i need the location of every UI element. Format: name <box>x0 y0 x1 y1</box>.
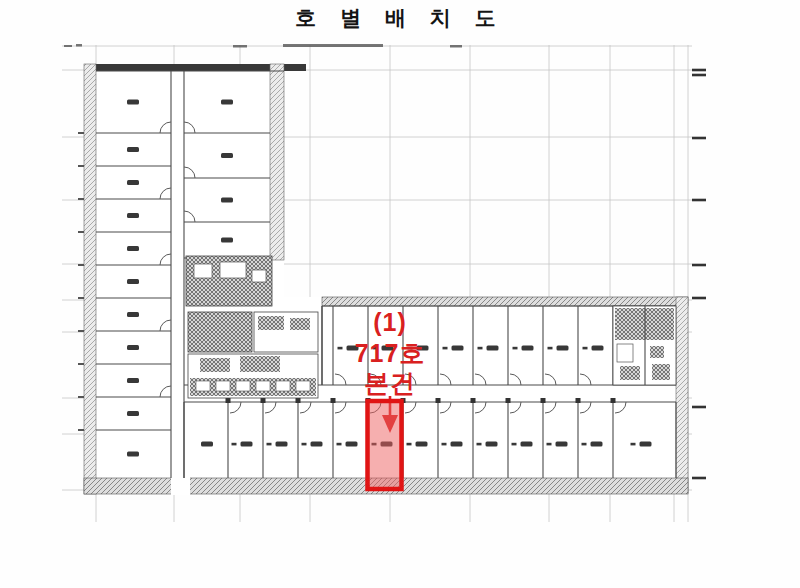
room-number-blob <box>232 443 237 446</box>
dimension-tick <box>692 477 706 480</box>
core-cell <box>290 318 310 330</box>
column-nub <box>541 398 546 403</box>
dimension-tick <box>692 137 706 140</box>
room-number-blob <box>127 213 139 218</box>
room-number-blob <box>513 347 518 350</box>
room-number-blob <box>201 442 213 447</box>
room-number-blob <box>452 346 464 351</box>
room-number-blob <box>583 347 588 350</box>
room-number-blob <box>631 443 636 446</box>
highlighted-unit-717 <box>368 401 402 489</box>
service-core-center <box>186 256 318 398</box>
right-wall <box>676 297 688 493</box>
fixture <box>617 344 633 362</box>
room-number-blob <box>241 442 253 447</box>
room-number-blob <box>221 100 233 105</box>
left-wall <box>84 64 96 494</box>
room-number-blob <box>302 443 307 446</box>
column-nub <box>471 398 476 403</box>
elevator-core <box>188 312 252 352</box>
annotation-unit-number: 717호 <box>355 339 426 367</box>
room-number-blob <box>522 346 534 351</box>
scan-artifact <box>64 45 72 47</box>
room-number-blob <box>221 238 233 243</box>
room-number-blob <box>451 442 463 447</box>
room-number-blob <box>276 442 288 447</box>
core-cell <box>200 358 230 372</box>
entrance-gap <box>171 477 190 495</box>
room-number-blob <box>486 442 498 447</box>
room-number-blob <box>521 442 533 447</box>
room-number-blob <box>267 443 272 446</box>
dimension-tick <box>692 406 706 409</box>
service-core-right <box>613 306 676 385</box>
core-cell <box>194 264 212 278</box>
core-cell <box>620 366 640 380</box>
column-nub <box>611 398 616 403</box>
room-number-blob <box>127 312 139 317</box>
core-cell <box>258 316 284 330</box>
room-number-blob <box>127 147 139 152</box>
room-number-blob <box>478 347 483 350</box>
room-number-blob <box>127 100 139 105</box>
document-page: 호 별 배 치 도 <box>0 0 800 588</box>
room-number-blob <box>592 346 604 351</box>
room-number-blob <box>548 347 553 350</box>
column-nub <box>436 398 441 403</box>
core-cell <box>650 346 664 358</box>
floor-plan-drawing: (1) 717호 본건 <box>0 0 800 588</box>
column-nub <box>331 398 336 403</box>
room-number-blob <box>127 452 139 457</box>
room-number-blob <box>127 246 139 251</box>
fixture <box>276 381 290 391</box>
column-nub <box>261 398 266 403</box>
column-nub <box>506 398 511 403</box>
room-number-blob <box>556 442 568 447</box>
room-number-blob <box>512 443 517 446</box>
room-number-blob <box>442 443 447 446</box>
room-number-blob <box>591 442 603 447</box>
room-number-blob <box>127 345 139 350</box>
core-cell <box>652 364 670 380</box>
dimension-tick <box>692 69 706 72</box>
room-number-blob <box>487 346 499 351</box>
scan-artifact <box>233 45 247 48</box>
room-number-blob <box>407 443 412 446</box>
room-number-blob <box>127 279 139 284</box>
room-number-blob <box>127 180 139 185</box>
column-nub <box>296 398 301 403</box>
dimension-tick <box>692 74 706 77</box>
room-number-blob <box>221 153 233 158</box>
room-number-blob <box>221 198 233 203</box>
room-number-blob <box>127 411 139 416</box>
fixture <box>196 381 210 391</box>
room-number-blob <box>416 442 428 447</box>
room-number-blob <box>346 442 358 447</box>
core-cell <box>252 270 266 282</box>
fixture <box>236 381 250 391</box>
room-number-blob <box>311 442 323 447</box>
scan-artifact <box>450 45 462 48</box>
annotation-subject-label: 본건 <box>364 369 416 397</box>
annotation-index: (1) <box>373 308 407 336</box>
fixture <box>256 381 270 391</box>
column-nub <box>576 398 581 403</box>
room-number-blob <box>443 347 448 350</box>
room-number-blob <box>640 442 652 447</box>
room-number-blob <box>338 347 343 350</box>
core-cell <box>240 356 280 372</box>
left-wing-right-wall <box>270 64 284 260</box>
fixture <box>216 381 230 391</box>
scan-artifact <box>76 44 82 47</box>
room-number-blob <box>127 378 139 383</box>
room-number-blob <box>477 443 482 446</box>
dimension-tick <box>692 264 706 267</box>
scan-artifact <box>283 44 383 47</box>
middle-band-top-wall <box>322 297 688 306</box>
room-number-blob <box>337 443 342 446</box>
dimension-tick <box>692 297 706 300</box>
room-number-blob <box>582 443 587 446</box>
fixture <box>296 381 310 391</box>
room-number-blob <box>547 443 552 446</box>
dimension-tick <box>692 199 706 202</box>
room-number-blob <box>557 346 569 351</box>
core-cell <box>220 262 246 278</box>
column-nub <box>226 398 231 403</box>
